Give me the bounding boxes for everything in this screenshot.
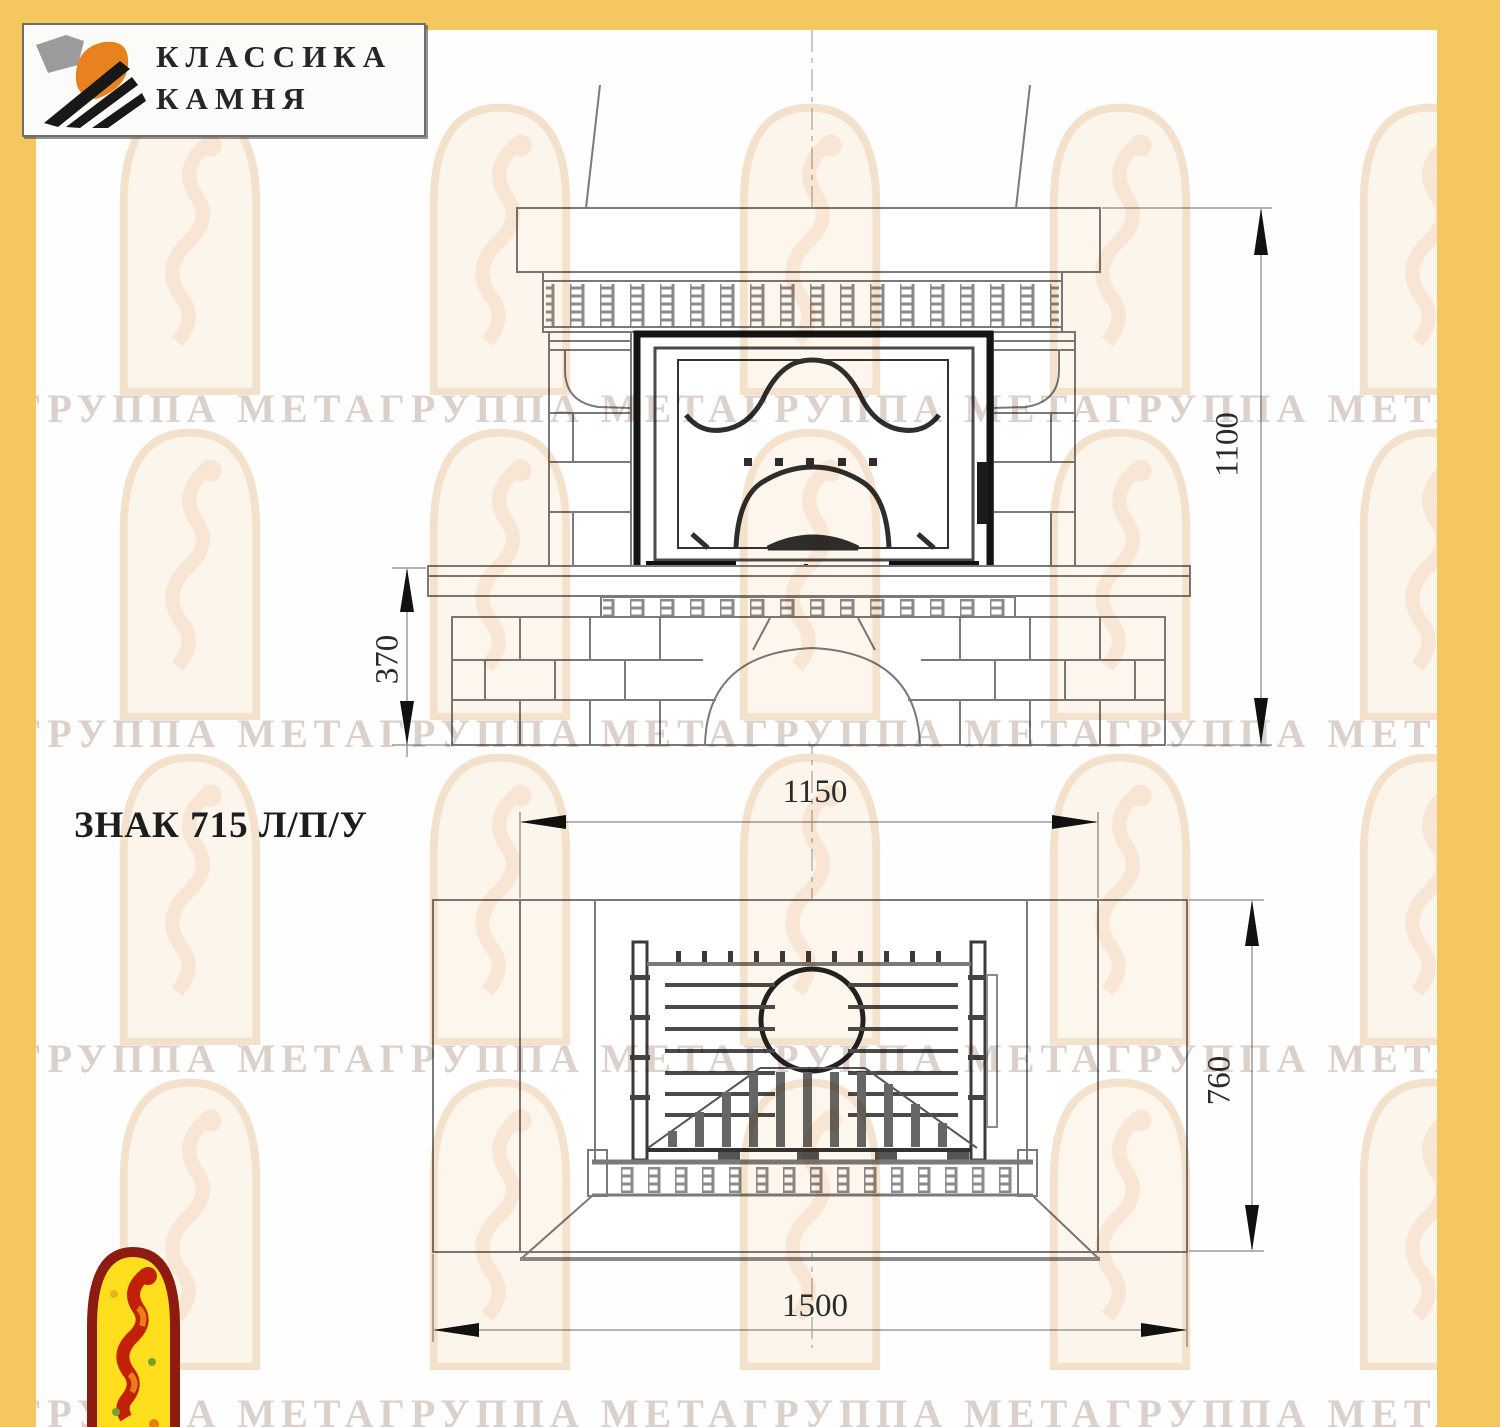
model-title: ЗНАК 715 Л/П/У	[74, 804, 368, 847]
brand-name-line1: КЛАССИКА	[156, 39, 392, 75]
dimension-label-total-height: 1100	[1210, 409, 1247, 481]
brand-logo-box: КЛАССИКА КАМНЯ	[22, 23, 426, 137]
dimension-label-depth: 760	[1202, 1045, 1239, 1117]
brand-name-line2: КАМНЯ	[156, 81, 312, 117]
meta-arch-logo	[86, 1242, 181, 1427]
firebox-insert	[637, 334, 990, 598]
plan-view	[433, 900, 1187, 1259]
flue-opening	[761, 969, 863, 1071]
chimney-line-left	[586, 85, 600, 208]
dimension-label-total-width: 1500	[745, 1288, 885, 1325]
page: ГРУППА МЕТАГРУППА МЕТАГРУППА МЕТАГРУППА …	[0, 0, 1500, 1427]
hearth-shelf	[428, 566, 1190, 596]
column-left	[549, 332, 631, 568]
mantel-shelf	[517, 208, 1100, 272]
stone-logo-icon	[32, 31, 152, 129]
dim-body-width	[520, 812, 1098, 898]
dimension-label-plinth-height: 370	[370, 624, 407, 696]
stone-plinth	[452, 617, 1165, 745]
technical-drawing	[0, 0, 1500, 1427]
frame-border-right	[1437, 0, 1500, 1427]
column-right	[993, 332, 1075, 568]
frame-border-left	[0, 0, 36, 1427]
frieze-band	[543, 272, 1062, 332]
door-handle	[977, 462, 988, 524]
plinth-frieze	[601, 597, 1015, 618]
dimension-label-body-width: 1150	[745, 774, 885, 811]
chimney-line-right	[1016, 85, 1030, 208]
